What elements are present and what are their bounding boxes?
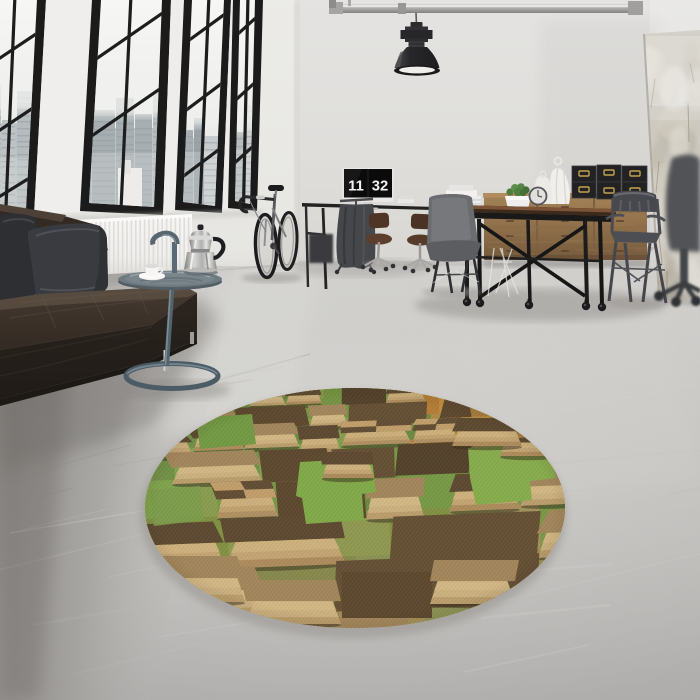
svg-text:32: 32 bbox=[372, 179, 388, 195]
